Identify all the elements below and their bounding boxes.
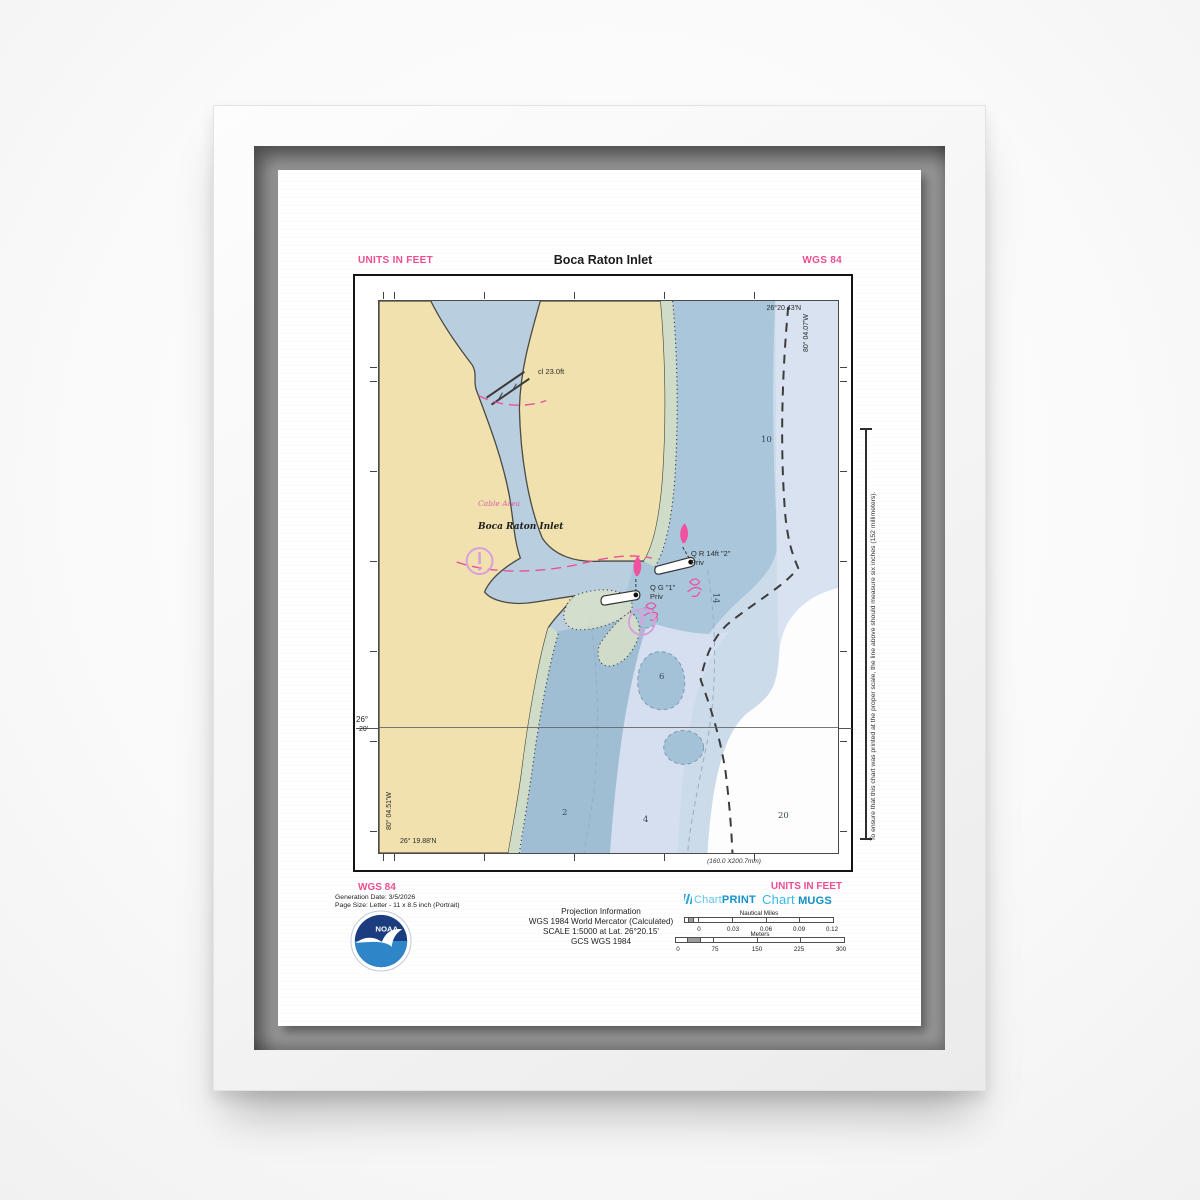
m-tick: 0 [676, 946, 679, 953]
scale-check-line [865, 429, 867, 839]
map-svg [379, 301, 838, 853]
nm-segment [800, 917, 834, 923]
picture-frame: UNITS IN FEET Boca Raton Inlet WGS 84 26… [213, 105, 986, 1091]
m-tick: 300 [836, 946, 846, 953]
meters-scalebar [675, 937, 845, 943]
latitude-min-left: 20' [359, 726, 368, 733]
frame-shadow-gap: UNITS IN FEET Boca Raton Inlet WGS 84 26… [254, 146, 945, 1050]
depth-patch-small-lower [664, 730, 704, 764]
m-subcell [701, 937, 714, 943]
m-segment [714, 937, 758, 943]
chartprint-stripes-icon [684, 894, 692, 904]
depth-patch-6ft [638, 652, 685, 710]
units-label-bottom: UNITS IN FEET [771, 881, 842, 892]
nm-scalebar-label: Nautical Miles [684, 910, 834, 917]
graticule-ticks-right [840, 300, 847, 854]
m-segment [801, 937, 845, 943]
chartprint-logo: ChartPRINT [684, 894, 756, 906]
datum-label-top: WGS 84 [802, 255, 842, 266]
map-area [378, 300, 839, 854]
chartmugs-word: Chart [762, 892, 795, 907]
m-segment [758, 937, 802, 943]
noaa-logo-icon: NOAA [350, 910, 412, 972]
nm-segment [699, 917, 733, 923]
nm-segment [733, 917, 767, 923]
noaa-logo-text: NOAA [375, 924, 398, 933]
land-barrier-island [519, 301, 665, 561]
neatline-dimension-note: (160.0 X200.7mm) [654, 858, 814, 865]
chart-title: Boca Raton Inlet [353, 253, 853, 267]
datum-label-bottom: WGS 84 [358, 882, 396, 893]
page-size: Page Size: Letter - 11 x 8.5 inch (Portr… [335, 902, 460, 910]
graticule-ticks-top [378, 292, 839, 299]
graticule-ticks-left [370, 300, 377, 854]
m-tick: 225 [794, 946, 804, 953]
m-subcell [675, 937, 688, 943]
chartmugs-bold: MUGS [798, 895, 832, 907]
generation-date: Generation Date: 3/5/2026 [335, 894, 415, 902]
m-tick: 150 [752, 946, 762, 953]
chart-canvas: UNITS IN FEET Boca Raton Inlet WGS 84 26… [278, 170, 921, 1026]
nm-segment [767, 917, 801, 923]
m-tick: 75 [712, 946, 719, 953]
chartprint-word: Chart [694, 894, 722, 906]
latitude-deg-left: 26° [356, 715, 368, 724]
scale-check-note: To ensure that this chart was printed at… [870, 429, 877, 841]
latitude-line-stub-right [839, 728, 852, 729]
chartprint-bold: PRINT [722, 894, 756, 906]
m-subcell [688, 937, 701, 943]
nm-scalebar [684, 917, 834, 923]
chartmugs-logo: Chart MUGS [762, 892, 832, 907]
meters-scalebar-ticks: 0 75 150 225 300 [675, 946, 845, 954]
